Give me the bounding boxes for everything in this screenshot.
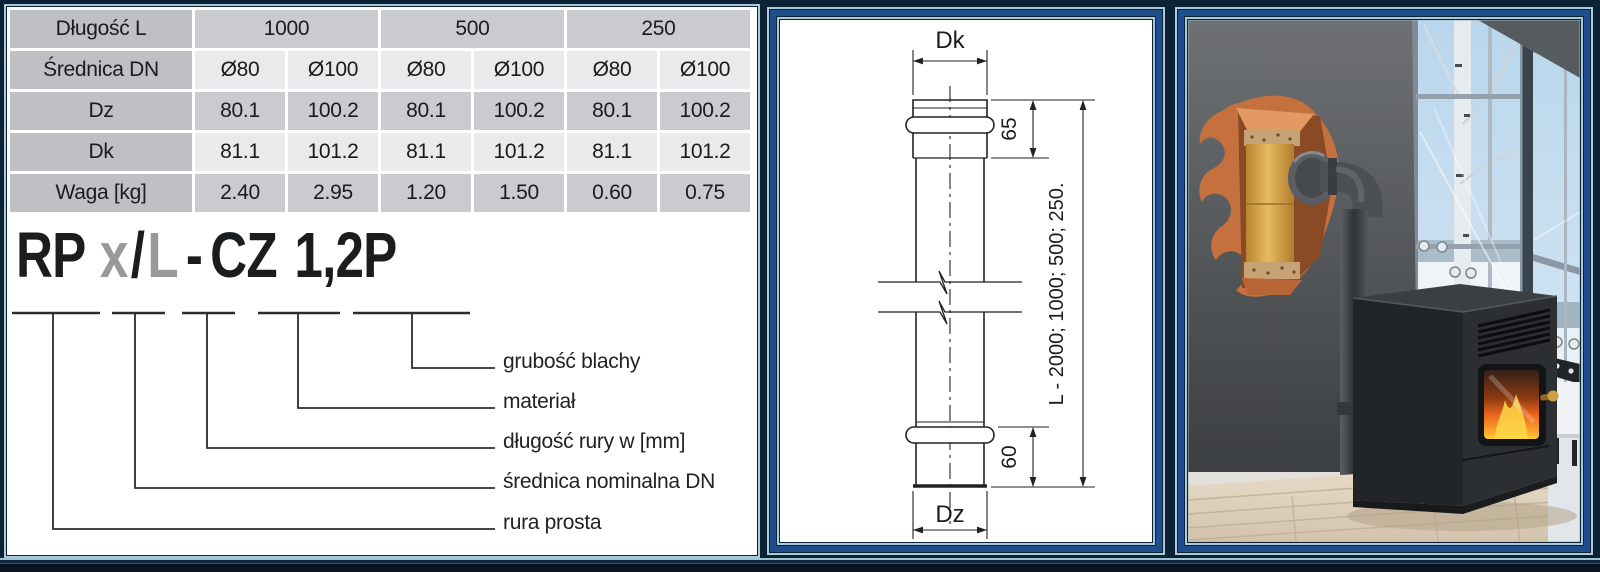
room-photo: [1172, 4, 1596, 558]
legend-pipe-length: długość rury w [mm]: [503, 430, 685, 454]
dim-label-60: 60: [998, 445, 1021, 468]
table-cell: 101.2: [288, 133, 378, 171]
table-cell: 1000: [195, 10, 378, 48]
table-cell: 2.95: [288, 174, 378, 212]
table-cell: 2.40: [195, 174, 285, 212]
table-header: Dz: [10, 92, 192, 130]
pellet-stove: [1353, 284, 1559, 514]
table-header: Średnica DN: [10, 51, 192, 89]
table-cell: 100.2: [474, 92, 564, 130]
table-cell: 101.2: [474, 133, 564, 171]
table-header: Długość L: [10, 10, 192, 48]
table-header: Dk: [10, 133, 192, 171]
table-cell: 101.2: [660, 133, 750, 171]
code-part-dash: -: [186, 219, 202, 291]
table-cell: Ø100: [660, 51, 750, 89]
code-part-x: x: [100, 219, 128, 291]
table-cell: 81.1: [195, 133, 285, 171]
legend-straight-pipe: rura prosta: [503, 511, 601, 535]
brass-handle: [1548, 391, 1559, 402]
photo-panel: [1172, 4, 1596, 558]
pipe-drawing: Dk Dz 65 60 L - 2000; 1000; 500; 250.: [764, 4, 1168, 558]
code-part-l: L: [147, 219, 177, 291]
table-cell: 81.1: [567, 133, 657, 171]
table-cell: Ø80: [195, 51, 285, 89]
legend-nominal-diameter: średnica nominalna DN: [503, 470, 715, 494]
legend-material: materiał: [503, 390, 575, 414]
table-cell: 80.1: [567, 92, 657, 130]
table-cell: 0.75: [660, 174, 750, 212]
code-part-size: 1,2P: [294, 219, 396, 291]
table-header: Waga [kg]: [10, 174, 192, 212]
product-code: RPx/L-CZ1,2P: [16, 218, 397, 292]
table-cell: 500: [381, 10, 564, 48]
spec-panel: Długość L 1000 500 250 Średnica DN Ø80 Ø…: [4, 4, 760, 558]
table-cell: 81.1: [381, 133, 471, 171]
table-cell: 1.20: [381, 174, 471, 212]
table-cell: 1.50: [474, 174, 564, 212]
code-part-cz: CZ: [210, 219, 277, 291]
table-cell: 80.1: [195, 92, 285, 130]
dim-label-dz: Dz: [935, 501, 964, 528]
dim-label-length: L - 2000; 1000; 500; 250.: [1046, 183, 1068, 406]
table-cell: 0.60: [567, 174, 657, 212]
dim-label-65: 65: [998, 117, 1021, 140]
code-part-rp: RP: [16, 219, 86, 291]
bottom-border: [0, 558, 1600, 572]
legend-sheet-thickness: grubość blachy: [503, 350, 640, 374]
table-cell: Ø100: [474, 51, 564, 89]
spec-table: Długość L 1000 500 250 Średnica DN Ø80 Ø…: [10, 10, 750, 212]
table-cell: 80.1: [381, 92, 471, 130]
technical-drawing-panel: Dk Dz 65 60 L - 2000; 1000; 500; 250.: [764, 4, 1168, 558]
table-cell: 100.2: [660, 92, 750, 130]
table-cell: 250: [567, 10, 750, 48]
table-cell: Ø80: [381, 51, 471, 89]
table-cell: Ø100: [288, 51, 378, 89]
product-sheet: Długość L 1000 500 250 Średnica DN Ø80 Ø…: [0, 0, 1600, 572]
code-part-slash: /: [131, 219, 144, 291]
dim-label-dk: Dk: [935, 27, 965, 54]
table-cell: 100.2: [288, 92, 378, 130]
table-cell: Ø80: [567, 51, 657, 89]
